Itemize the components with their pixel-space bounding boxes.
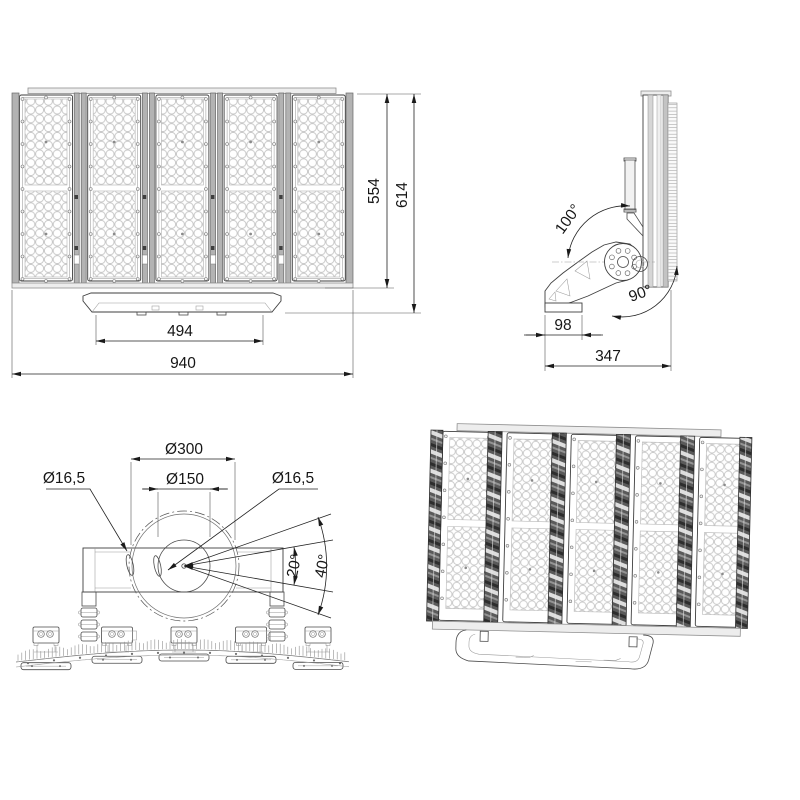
- top-view: Ø300 Ø150 Ø16,5 Ø16,5 20° 40°: [16, 441, 349, 670]
- strip-screw: [157, 652, 159, 654]
- screw: [21, 255, 24, 258]
- strip-screw: [339, 662, 341, 664]
- screw: [249, 280, 252, 283]
- screw: [136, 278, 139, 281]
- rail: [211, 93, 216, 283]
- screw: [204, 143, 207, 146]
- cable-gland-inner: [48, 632, 51, 635]
- screw: [68, 98, 71, 101]
- screw: [569, 600, 572, 603]
- screw: [68, 255, 71, 258]
- screw: [698, 576, 701, 579]
- screw: [294, 233, 297, 236]
- dim-hole-right: Ø16,5: [272, 470, 314, 487]
- screw: [157, 143, 160, 146]
- screw: [21, 165, 24, 168]
- side-slab-band: [648, 95, 653, 287]
- screw: [341, 165, 344, 168]
- screw: [505, 571, 508, 574]
- screw: [634, 547, 637, 550]
- screw: [699, 549, 702, 552]
- dim-hole-left: Ø16,5: [43, 470, 85, 487]
- screw: [294, 188, 297, 191]
- screw: [701, 468, 704, 471]
- rail-clip: [279, 246, 282, 250]
- screw: [204, 98, 207, 101]
- screw: [635, 520, 638, 523]
- rail: [218, 93, 223, 283]
- screw: [204, 188, 207, 191]
- cable-gland: [252, 631, 259, 638]
- front-bottom-trim: [12, 283, 353, 288]
- pad-screw: [303, 665, 305, 667]
- screw: [273, 143, 276, 146]
- rail: [12, 93, 19, 283]
- screw: [570, 573, 573, 576]
- screw: [68, 165, 71, 168]
- screw: [636, 493, 639, 496]
- rail-clip: [143, 246, 146, 250]
- cable-gland-inner: [39, 632, 42, 635]
- iso-yoke-outer: [455, 630, 653, 670]
- technical-drawing-page: 494 940 554 614 100° 90°: [0, 0, 800, 800]
- cable-gland-inner: [119, 632, 122, 635]
- dim-overall-width: 940: [170, 355, 196, 372]
- side-slab-band: [663, 95, 668, 287]
- screw: [273, 98, 276, 101]
- pad-screw: [264, 659, 266, 661]
- rail-connector: [142, 255, 147, 264]
- screw: [89, 98, 92, 101]
- cable-gland: [47, 631, 54, 638]
- screw: [21, 233, 24, 236]
- pad-screw: [197, 657, 199, 659]
- screw: [157, 233, 160, 236]
- screw: [136, 233, 139, 236]
- screw: [21, 98, 24, 101]
- dim-tilt-rear: 100°: [552, 201, 585, 237]
- screw: [89, 210, 92, 213]
- screw: [226, 98, 229, 101]
- screw: [204, 120, 207, 123]
- screw: [21, 210, 24, 213]
- pad-screw: [236, 659, 238, 661]
- driver-flange: [133, 631, 137, 640]
- screw: [226, 165, 229, 168]
- screw: [136, 210, 139, 213]
- screw: [273, 255, 276, 258]
- screw: [294, 210, 297, 213]
- rail: [142, 93, 147, 283]
- screw: [294, 98, 297, 101]
- side-view: 100° 90° 98 347: [524, 91, 677, 371]
- screw: [181, 96, 184, 99]
- cable-gland-inner: [186, 632, 189, 635]
- driver-pedestal: [34, 645, 58, 652]
- strip-screw: [53, 659, 55, 661]
- cable-gland: [176, 631, 183, 638]
- rail-connector: [279, 255, 284, 264]
- screw: [157, 255, 160, 258]
- screw: [570, 546, 573, 549]
- screw: [21, 278, 24, 281]
- top-driver-boxes: [21, 627, 343, 670]
- pad-screw: [130, 659, 132, 661]
- rail-clip: [75, 195, 78, 199]
- screw: [294, 165, 297, 168]
- strip-screw: [79, 657, 81, 659]
- driver-box: [33, 627, 59, 643]
- side-fin-stack: [668, 103, 677, 281]
- dim-angle-outer: 40°: [312, 553, 334, 579]
- cable-gland-inner: [244, 632, 247, 635]
- cable-gland: [109, 631, 116, 638]
- strip-screw: [105, 654, 107, 656]
- screw: [89, 165, 92, 168]
- screw: [341, 233, 344, 236]
- screw: [45, 280, 48, 283]
- iso-yoke-tab: [480, 631, 488, 641]
- screw: [204, 255, 207, 258]
- cable-gland: [310, 631, 317, 638]
- strip-screw: [183, 651, 185, 653]
- cable-gland: [118, 631, 125, 638]
- screw: [249, 96, 252, 99]
- screw: [273, 165, 276, 168]
- rail: [149, 93, 154, 283]
- screw: [699, 522, 702, 525]
- cable-gland: [243, 631, 250, 638]
- screw: [509, 436, 512, 439]
- screw: [181, 280, 184, 283]
- top-yoke-band: [83, 548, 283, 592]
- screw: [506, 544, 509, 547]
- screw: [443, 516, 446, 519]
- dim-angle-inner: 20°: [284, 553, 306, 579]
- driver-box: [305, 627, 331, 643]
- leader-hole-left: [46, 489, 127, 551]
- screw: [441, 597, 444, 600]
- rail-clip: [143, 195, 146, 199]
- screw: [273, 188, 276, 191]
- strip-screw: [313, 659, 315, 661]
- top-yoke-foot: [82, 592, 96, 606]
- screw: [136, 165, 139, 168]
- screw: [136, 98, 139, 101]
- screw: [572, 465, 575, 468]
- front-yoke-bracket: [83, 293, 281, 312]
- screw: [573, 438, 576, 441]
- screw: [441, 570, 444, 573]
- screw: [341, 98, 344, 101]
- screw: [341, 143, 344, 146]
- panel-center-dot: [249, 233, 252, 236]
- screw: [273, 278, 276, 281]
- screw: [157, 165, 160, 168]
- screw: [136, 143, 139, 146]
- front-view: 494 940 554 614: [12, 88, 421, 378]
- screw: [157, 278, 160, 281]
- screw: [157, 120, 160, 123]
- rail-clip: [211, 246, 214, 250]
- front-led-modules: [20, 95, 346, 283]
- cable-gland-inner: [311, 632, 314, 635]
- screw: [571, 519, 574, 522]
- screw: [204, 210, 207, 213]
- screw: [341, 278, 344, 281]
- panel-center-dot: [181, 141, 184, 144]
- panel-center-dot: [113, 233, 116, 236]
- screw: [21, 120, 24, 123]
- screw: [89, 233, 92, 236]
- driver-box: [171, 627, 197, 643]
- screw: [89, 143, 92, 146]
- strip-screw: [27, 662, 29, 664]
- screw: [341, 120, 344, 123]
- screw: [444, 435, 447, 438]
- side-pivot-flange: [605, 244, 642, 281]
- screw: [341, 188, 344, 191]
- iso-yoke-inner: [469, 634, 644, 662]
- screw: [226, 255, 229, 258]
- cable-gland-inner: [110, 632, 113, 635]
- screw: [45, 96, 48, 99]
- iso-view: [425, 423, 752, 672]
- screw: [21, 188, 24, 191]
- panel-center-dot: [181, 233, 184, 236]
- dim-bolt-circle: Ø300: [165, 441, 203, 458]
- dim-mount-width: 494: [167, 323, 193, 340]
- screw: [136, 188, 139, 191]
- dim-overall-depth: 347: [595, 348, 621, 365]
- panel-center-dot: [317, 141, 320, 144]
- cable-gland-inner: [320, 632, 323, 635]
- screw: [636, 466, 639, 469]
- rail-connector: [74, 255, 79, 264]
- strip-screw: [261, 655, 263, 657]
- rail: [286, 93, 291, 283]
- side-slab-band: [657, 95, 661, 287]
- screw: [697, 603, 700, 606]
- driver-pedestal: [172, 645, 196, 652]
- screw: [89, 255, 92, 258]
- dim-mount-depth: 98: [554, 317, 571, 334]
- screw: [157, 210, 160, 213]
- panel-center-dot: [249, 141, 252, 144]
- screw: [341, 210, 344, 213]
- screw: [317, 280, 320, 283]
- iso-yoke-tab: [629, 637, 637, 647]
- screw: [317, 96, 320, 99]
- screw: [89, 278, 92, 281]
- screw: [226, 210, 229, 213]
- screw: [444, 462, 447, 465]
- dim-overall-height: 614: [394, 182, 411, 208]
- cable-gland-inner: [177, 632, 180, 635]
- screw: [157, 98, 160, 101]
- rail: [346, 93, 353, 283]
- rail-clip: [279, 195, 282, 199]
- screw: [273, 233, 276, 236]
- screw: [68, 233, 71, 236]
- driver-box: [236, 627, 267, 643]
- pad-screw: [102, 659, 104, 661]
- cable-gland: [38, 631, 45, 638]
- screw: [294, 278, 297, 281]
- panel-center-dot: [317, 233, 320, 236]
- screw: [68, 120, 71, 123]
- cable-gland: [319, 631, 326, 638]
- screw: [294, 255, 297, 258]
- strip-screw: [131, 653, 133, 655]
- strip-screw: [209, 652, 211, 654]
- screw: [204, 278, 207, 281]
- screw: [273, 210, 276, 213]
- pad-screw: [59, 665, 61, 667]
- dim-hub-circle: Ø150: [166, 471, 204, 488]
- screw: [572, 492, 575, 495]
- rail-connector: [211, 255, 216, 264]
- strip-screw: [235, 653, 237, 655]
- rail: [81, 93, 86, 283]
- screw: [21, 143, 24, 146]
- side-mount-plate: [625, 160, 635, 210]
- screw: [113, 96, 116, 99]
- top-ext-hub: [158, 492, 210, 537]
- screw: [507, 517, 510, 520]
- pad-screw: [169, 657, 171, 659]
- panel-center-dot: [45, 233, 48, 236]
- screw: [701, 441, 704, 444]
- screw: [633, 601, 636, 604]
- screw: [637, 439, 640, 442]
- side-bracket-base: [545, 303, 582, 312]
- screw: [442, 543, 445, 546]
- screw: [68, 278, 71, 281]
- screw: [700, 495, 703, 498]
- floodlight-dimension-drawing: 494 940 554 614 100° 90°: [0, 0, 800, 800]
- screw: [226, 120, 229, 123]
- dim-body-height: 554: [366, 178, 383, 204]
- screw: [226, 233, 229, 236]
- screw: [89, 188, 92, 191]
- driver-pedestal: [239, 645, 263, 652]
- cable-gland-inner: [253, 632, 256, 635]
- strip-screw: [287, 657, 289, 659]
- screw: [294, 120, 297, 123]
- screw: [68, 188, 71, 191]
- screw: [157, 188, 160, 191]
- screw: [273, 120, 276, 123]
- panel-center-dot: [113, 141, 116, 144]
- screw: [113, 280, 116, 283]
- screw: [226, 278, 229, 281]
- side-plate-wedge: [627, 213, 643, 236]
- rail-clip: [211, 195, 214, 199]
- cable-gland: [185, 631, 192, 638]
- screw: [226, 143, 229, 146]
- screw: [226, 188, 229, 191]
- screw: [204, 165, 207, 168]
- screw: [507, 490, 510, 493]
- rail: [74, 93, 79, 283]
- screw: [136, 255, 139, 258]
- screw: [508, 463, 511, 466]
- screw: [341, 255, 344, 258]
- screw: [89, 120, 92, 123]
- rail: [279, 93, 284, 283]
- screw: [505, 598, 508, 601]
- driver-box: [102, 627, 133, 643]
- screw: [68, 210, 71, 213]
- screw: [443, 489, 446, 492]
- screw: [634, 574, 637, 577]
- screw: [294, 143, 297, 146]
- screw: [68, 143, 71, 146]
- rail-clip: [75, 246, 78, 250]
- panel-center-dot: [45, 141, 48, 144]
- screw: [136, 120, 139, 123]
- screw: [204, 233, 207, 236]
